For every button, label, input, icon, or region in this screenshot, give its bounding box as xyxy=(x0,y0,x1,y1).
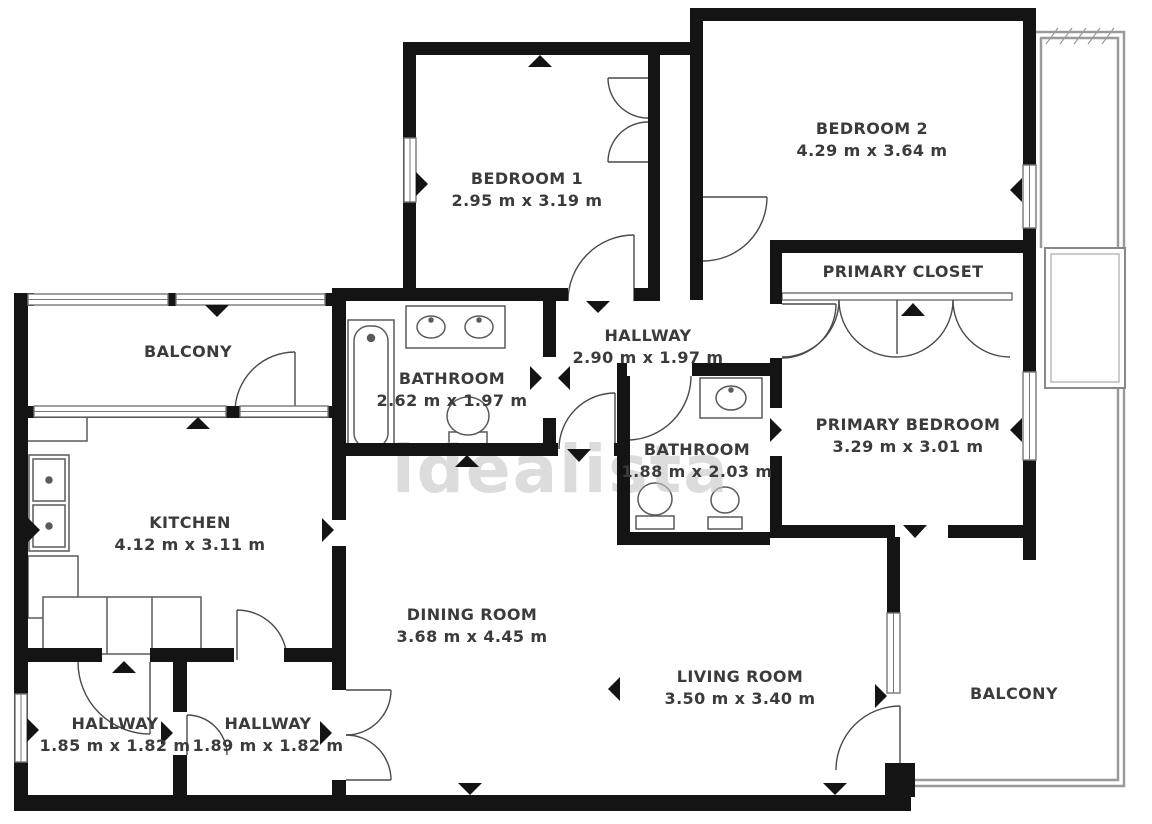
room-dims: 1.85 m x 1.82 m xyxy=(40,735,191,757)
room-name: LIVING ROOM xyxy=(677,667,803,686)
room-label-balcony-bottom: BALCONY xyxy=(970,683,1058,705)
room-label-bathroom-main: BATHROOM 2.62 m x 1.97 m xyxy=(377,368,528,412)
room-label-bedroom-1: BEDROOM 1 2.95 m x 3.19 m xyxy=(452,168,603,212)
sink-ensuite xyxy=(700,378,762,418)
floor-plan: idealista xyxy=(0,0,1152,824)
room-dims: 4.12 m x 3.11 m xyxy=(115,534,266,556)
room-label-hallway-top: HALLWAY 2.90 m x 1.97 m xyxy=(573,325,724,369)
room-name: HALLWAY xyxy=(224,714,311,733)
room-label-kitchen: KITCHEN 4.12 m x 3.11 m xyxy=(115,512,266,556)
room-name: BATHROOM xyxy=(644,440,750,459)
room-name: KITCHEN xyxy=(149,513,231,532)
room-label-balcony-top: BALCONY xyxy=(144,341,232,363)
room-label-hallway-b: HALLWAY 1.89 m x 1.82 m xyxy=(193,713,344,757)
room-name: BALCONY xyxy=(970,684,1058,703)
room-label-dining-room: DINING ROOM 3.68 m x 4.45 m xyxy=(397,604,548,648)
terrace-planter xyxy=(1045,248,1125,388)
room-dims: 2.90 m x 1.97 m xyxy=(573,347,724,369)
room-label-bedroom-2: BEDROOM 2 4.29 m x 3.64 m xyxy=(797,118,948,162)
room-dims: 3.50 m x 3.40 m xyxy=(665,688,816,710)
room-label-living-room: LIVING ROOM 3.50 m x 3.40 m xyxy=(665,666,816,710)
room-label-hallway-a: HALLWAY 1.85 m x 1.82 m xyxy=(40,713,191,757)
room-label-bathroom-ensuite: BATHROOM 1.88 m x 2.03 m xyxy=(622,439,773,483)
room-dims: 3.68 m x 4.45 m xyxy=(397,626,548,648)
room-dims: 4.29 m x 3.64 m xyxy=(797,140,948,162)
room-name: BATHROOM xyxy=(399,369,505,388)
room-dims: 1.88 m x 2.03 m xyxy=(622,461,773,483)
room-name: PRIMARY CLOSET xyxy=(823,262,984,281)
room-dims: 2.62 m x 1.97 m xyxy=(377,390,528,412)
room-name: HALLWAY xyxy=(71,714,158,733)
room-label-primary-bedroom: PRIMARY BEDROOM 3.29 m x 3.01 m xyxy=(816,414,1001,458)
room-name: PRIMARY BEDROOM xyxy=(816,415,1001,434)
room-name: BALCONY xyxy=(144,342,232,361)
room-dims: 2.95 m x 3.19 m xyxy=(452,190,603,212)
room-name: BEDROOM 1 xyxy=(471,169,583,188)
room-name: BEDROOM 2 xyxy=(816,119,928,138)
double-sink xyxy=(406,306,505,348)
room-name: DINING ROOM xyxy=(407,605,538,624)
room-label-primary-closet: PRIMARY CLOSET xyxy=(823,261,984,283)
room-name: HALLWAY xyxy=(604,326,691,345)
room-dims: 3.29 m x 3.01 m xyxy=(816,436,1001,458)
room-dims: 1.89 m x 1.82 m xyxy=(193,735,344,757)
